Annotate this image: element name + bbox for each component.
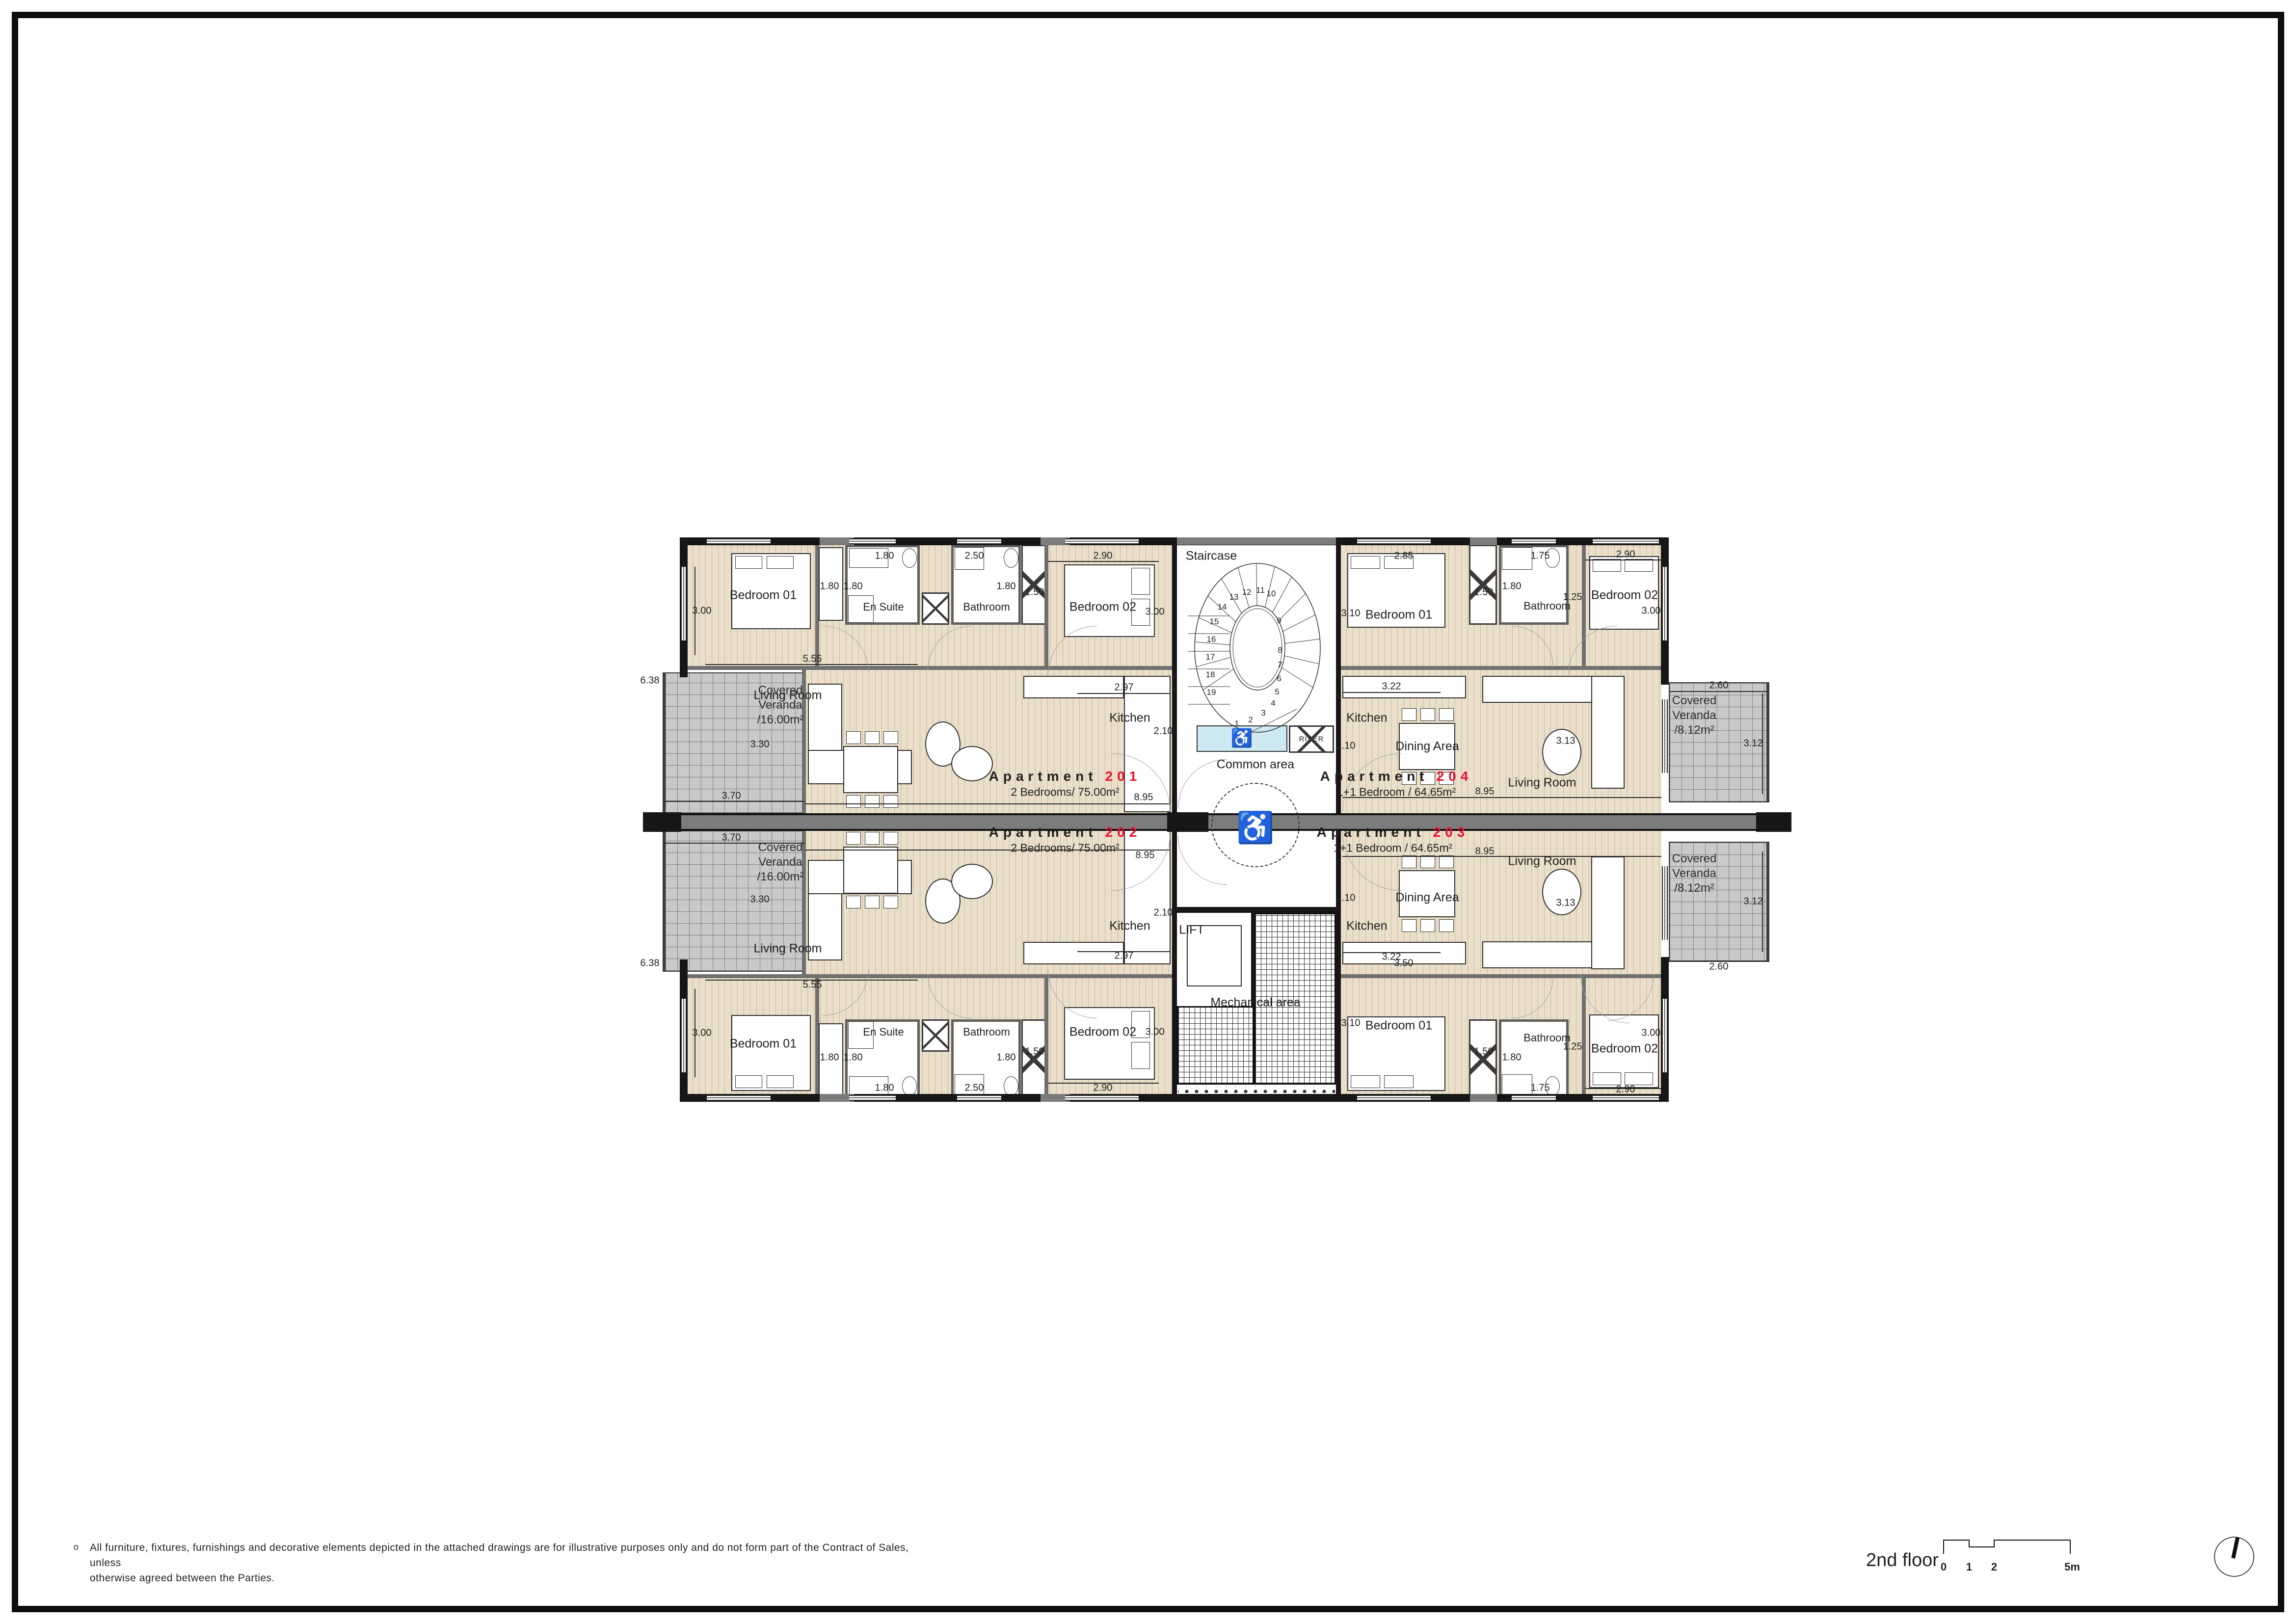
dimension-line xyxy=(705,664,918,665)
dimension-line xyxy=(694,989,695,1077)
armchair xyxy=(951,746,993,781)
wall-bedrooms-201 xyxy=(680,666,1173,670)
window xyxy=(849,538,896,544)
window xyxy=(707,538,771,544)
disclaimer: All furniture, fixtures, furnishings and… xyxy=(90,1540,924,1586)
chair xyxy=(883,832,898,845)
window xyxy=(707,1095,771,1101)
window xyxy=(849,1095,896,1101)
sink xyxy=(955,547,984,570)
pillow xyxy=(1131,1042,1150,1069)
armchair xyxy=(951,864,993,899)
toilet xyxy=(1545,1076,1560,1096)
chair xyxy=(865,731,880,744)
disclaimer-line-2: otherwise agreed between the Parties. xyxy=(90,1571,924,1586)
mechanical-area-b xyxy=(1177,1006,1254,1085)
dimension-line xyxy=(1762,693,1763,794)
core-wall xyxy=(1251,913,1255,1006)
dimension-line xyxy=(1670,960,1769,961)
shower xyxy=(848,1021,874,1049)
partition xyxy=(1044,978,1048,1099)
window xyxy=(1512,538,1556,544)
wall-segment xyxy=(1470,537,1497,545)
floor-title: 2nd floor xyxy=(1866,1550,1939,1571)
spine-cap xyxy=(643,812,681,832)
chair xyxy=(1402,919,1416,932)
dining-table xyxy=(1399,870,1455,917)
staircase-graphic xyxy=(1179,547,1334,748)
pillow xyxy=(1131,568,1150,595)
chair xyxy=(883,731,898,744)
closet-204 xyxy=(1469,545,1497,625)
pillow xyxy=(767,1075,794,1088)
pillow xyxy=(1384,556,1414,569)
dimension-line xyxy=(1048,561,1159,562)
toilet xyxy=(1545,548,1560,568)
wall-segment xyxy=(1470,1094,1497,1102)
kitchen-counter xyxy=(1342,942,1466,964)
dimension-line xyxy=(664,801,805,802)
chair xyxy=(865,896,880,908)
chair xyxy=(1402,772,1416,785)
dimension-line xyxy=(1048,1083,1159,1084)
floor-plan: 12345678910111213141516171819StaircaseCo… xyxy=(633,537,1801,1102)
sofa xyxy=(1591,676,1625,789)
window xyxy=(1065,538,1139,544)
scale-tick-1: 1 xyxy=(1966,1561,1972,1573)
chair xyxy=(846,731,861,744)
chair xyxy=(1420,708,1435,721)
scale-tick-5m: 5m xyxy=(2064,1561,2080,1573)
sofa xyxy=(1591,856,1625,969)
scale-bar xyxy=(1942,1534,2079,1559)
dimension-line xyxy=(1670,691,1769,692)
scale-bar-graphic xyxy=(1942,1534,2079,1557)
closet-202 xyxy=(1021,1019,1046,1099)
pillow xyxy=(1593,559,1621,572)
vent-strip xyxy=(1178,1086,1335,1093)
veranda-201 xyxy=(663,672,805,814)
window xyxy=(957,538,1001,544)
core-wall xyxy=(1177,537,1336,545)
shaft-202 xyxy=(922,1019,949,1052)
pillow xyxy=(1593,1072,1621,1085)
dimension-line xyxy=(1762,852,1763,952)
partition xyxy=(1044,545,1048,666)
window xyxy=(957,1095,1001,1101)
chair xyxy=(883,896,898,908)
chair xyxy=(846,896,861,908)
pillow xyxy=(735,556,762,569)
armchair xyxy=(1542,869,1581,915)
chair xyxy=(865,832,880,845)
window xyxy=(681,999,687,1072)
spine-cap xyxy=(1756,812,1791,832)
dimension-line xyxy=(1585,559,1661,560)
chair xyxy=(1420,772,1435,785)
dining-table xyxy=(843,847,898,894)
sink xyxy=(849,1076,888,1096)
closet-203 xyxy=(1469,1019,1497,1099)
chair xyxy=(865,795,880,808)
window xyxy=(1662,699,1668,773)
pillow xyxy=(1351,1075,1380,1088)
veranda-202 xyxy=(663,830,805,972)
spine-cap xyxy=(1167,812,1208,832)
window xyxy=(1357,1095,1431,1101)
chair xyxy=(1402,855,1416,868)
window xyxy=(1593,1095,1659,1101)
dim-label: 6.38 xyxy=(641,675,660,687)
dimension-line xyxy=(1077,951,1171,952)
dimension-line xyxy=(694,567,695,655)
chair xyxy=(1402,708,1416,721)
window xyxy=(681,567,687,640)
disclaimer-bullet: o xyxy=(74,1542,79,1552)
window xyxy=(1662,567,1668,640)
pillow xyxy=(767,556,794,569)
toilet xyxy=(902,1076,917,1096)
disclaimer-line-1: All furniture, fixtures, furnishings and… xyxy=(90,1540,924,1571)
dimension-line xyxy=(664,843,805,844)
window xyxy=(1593,538,1659,544)
dining-table xyxy=(843,746,898,793)
dimension-line xyxy=(1342,952,1441,953)
scale-tick-0: 0 xyxy=(1941,1561,1947,1573)
wall-bedrooms-202 xyxy=(680,974,1173,978)
wardrobe xyxy=(819,547,843,621)
armchair xyxy=(1542,729,1581,775)
pillow xyxy=(1384,1075,1414,1088)
partition xyxy=(802,829,806,974)
wardrobe xyxy=(819,1023,843,1097)
chair xyxy=(883,795,898,808)
dimension-line xyxy=(705,980,918,981)
toilet xyxy=(902,548,917,568)
mechanical-area-a xyxy=(1254,913,1336,1085)
kitchen-counter xyxy=(1342,676,1466,698)
core-wall xyxy=(1177,907,1336,913)
chair xyxy=(1439,855,1454,868)
shaft-201 xyxy=(922,592,949,625)
pillow xyxy=(1131,1011,1150,1038)
chair xyxy=(846,832,861,845)
kitchen-counter xyxy=(1023,676,1124,698)
chair xyxy=(1439,708,1454,721)
pillow xyxy=(1351,556,1380,569)
dimension-line xyxy=(1342,692,1441,693)
chair xyxy=(846,795,861,808)
chair xyxy=(1439,772,1454,785)
sink xyxy=(1502,547,1532,570)
dim-label: 6.38 xyxy=(641,958,660,969)
shower xyxy=(848,595,874,623)
pillow xyxy=(1625,559,1653,572)
sink xyxy=(849,548,888,568)
chair xyxy=(1420,919,1435,932)
partition xyxy=(802,670,806,815)
dimension-line xyxy=(1077,693,1171,694)
scale-tick-2: 2 xyxy=(1991,1561,1997,1573)
chair xyxy=(1420,855,1435,868)
veranda-204 xyxy=(1669,682,1769,802)
window xyxy=(1357,538,1431,544)
window xyxy=(1512,1095,1556,1101)
chair xyxy=(1439,919,1454,932)
pillow xyxy=(735,1075,762,1088)
north-arrow-icon xyxy=(2212,1534,2257,1582)
dimension-line xyxy=(1585,1088,1661,1089)
pillow xyxy=(1131,599,1150,626)
toilet xyxy=(1004,1076,1018,1096)
toilet xyxy=(1004,548,1018,568)
pillow xyxy=(1625,1072,1653,1085)
lift-car xyxy=(1187,925,1242,986)
window xyxy=(1662,866,1668,940)
dining-table xyxy=(1399,723,1455,770)
dim-label: 2.60 xyxy=(1709,961,1729,973)
window xyxy=(1065,1095,1139,1101)
window xyxy=(1662,999,1668,1072)
closet-201 xyxy=(1021,545,1046,625)
veranda-203 xyxy=(1669,842,1769,962)
kitchen-counter xyxy=(1023,942,1124,964)
